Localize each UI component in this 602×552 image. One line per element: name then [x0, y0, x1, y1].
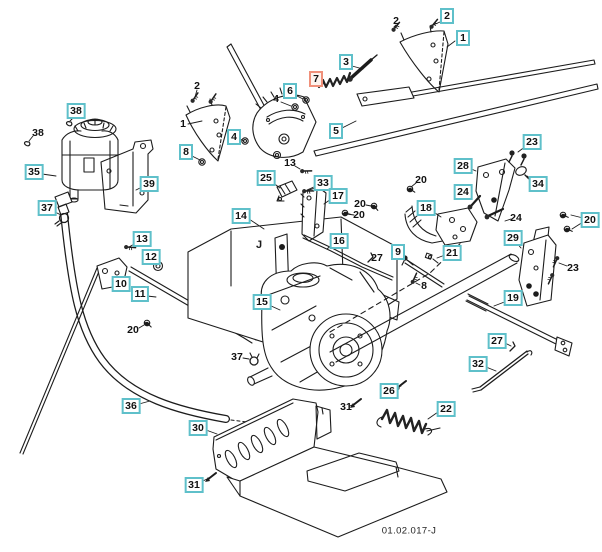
callout-30[interactable]: 30 — [189, 420, 208, 436]
callout-21[interactable]: 21 — [443, 245, 462, 261]
callout-7[interactable]: 7 — [309, 71, 323, 87]
callout-31[interactable]: 31 — [340, 401, 352, 413]
part-15-transaxle — [246, 263, 390, 390]
part-35-reservoir — [62, 119, 118, 202]
callout-29[interactable]: 29 — [504, 230, 523, 246]
callout-35[interactable]: 35 — [25, 164, 44, 180]
callout-23[interactable]: 23 — [523, 134, 542, 150]
callout-13[interactable]: 13 — [133, 231, 152, 247]
callout-16[interactable]: 16 — [330, 233, 349, 249]
callout-32[interactable]: 32 — [469, 356, 488, 372]
callout-27[interactable]: 27 — [371, 252, 383, 264]
callout-37[interactable]: 37 — [38, 200, 57, 216]
callout-14[interactable]: 14 — [232, 208, 251, 224]
callout-24[interactable]: 24 — [510, 212, 522, 224]
diagram-artwork: J — [0, 0, 602, 552]
callout-20[interactable]: 20 — [581, 212, 600, 228]
callout-15[interactable]: 15 — [253, 294, 272, 310]
callout-10[interactable]: 10 — [112, 276, 131, 292]
callout-20[interactable]: 20 — [415, 174, 427, 186]
callout-18[interactable]: 18 — [417, 200, 436, 216]
drawing-number: 01.02.017-J — [382, 526, 437, 537]
callout-3[interactable]: 3 — [339, 54, 353, 70]
callout-4[interactable]: 4 — [227, 129, 241, 145]
callout-12[interactable]: 12 — [142, 249, 161, 265]
callout-11[interactable]: 11 — [131, 286, 149, 302]
callout-22[interactable]: 22 — [437, 401, 456, 417]
callout-2[interactable]: 2 — [393, 15, 399, 27]
callout-8[interactable]: 8 — [179, 144, 193, 160]
callout-27[interactable]: 27 — [488, 333, 507, 349]
rods-19-32 — [466, 294, 572, 392]
callout-8[interactable]: 8 — [421, 280, 427, 292]
callout-1[interactable]: 1 — [180, 118, 186, 130]
callout-5[interactable]: 5 — [329, 123, 343, 139]
callout-9[interactable]: 9 — [391, 244, 405, 260]
callout-2[interactable]: 2 — [440, 8, 454, 24]
part-30-guard — [205, 381, 447, 537]
callout-4[interactable]: 4 — [273, 93, 279, 105]
callout-17[interactable]: 17 — [329, 188, 348, 204]
callout-38[interactable]: 38 — [67, 103, 86, 119]
part-22-spring — [377, 410, 440, 435]
callout-24[interactable]: 24 — [454, 184, 473, 200]
callout-39[interactable]: 39 — [140, 176, 159, 192]
callout-20[interactable]: 20 — [353, 209, 365, 221]
callout-20[interactable]: 20 — [127, 324, 139, 336]
callout-2[interactable]: 2 — [194, 80, 200, 92]
callout-6[interactable]: 6 — [283, 83, 297, 99]
callout-37[interactable]: 37 — [231, 351, 243, 363]
callout-25[interactable]: 25 — [257, 170, 276, 186]
callout-34[interactable]: 34 — [529, 176, 548, 192]
callout-13[interactable]: 13 — [284, 157, 296, 169]
callout-1[interactable]: 1 — [456, 30, 470, 46]
plate-letter: J — [256, 239, 262, 251]
callout-19[interactable]: 19 — [504, 290, 523, 306]
parts-diagram: J — [0, 0, 602, 552]
callout-36[interactable]: 36 — [122, 398, 141, 414]
callout-31[interactable]: 31 — [185, 477, 204, 493]
callout-26[interactable]: 26 — [380, 383, 399, 399]
callout-38[interactable]: 38 — [32, 127, 44, 139]
callout-23[interactable]: 23 — [567, 262, 579, 274]
callout-28[interactable]: 28 — [454, 158, 473, 174]
